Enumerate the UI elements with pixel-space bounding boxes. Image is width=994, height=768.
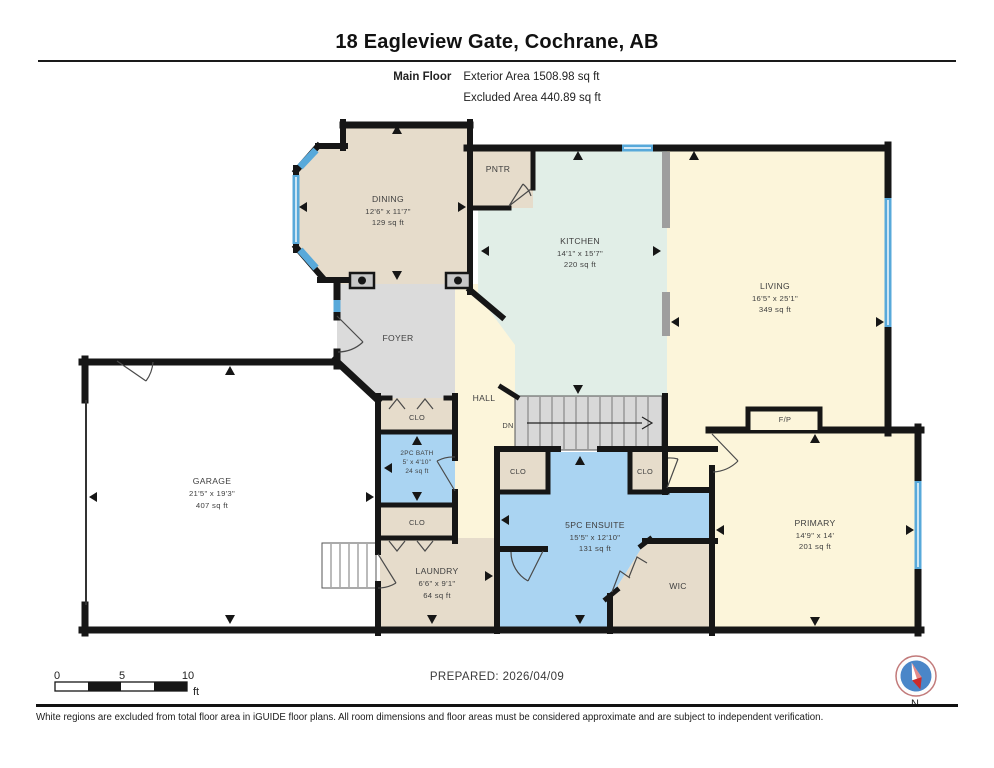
laundry-dims: 6'6" x 9'1" — [419, 579, 456, 588]
kitchen-label: KITCHEN — [560, 236, 600, 246]
half-wall-kitchen-lower — [662, 292, 670, 336]
dining-dims: 12'6" x 11'7" — [365, 207, 411, 216]
bath-area: 24 sq ft — [405, 468, 428, 475]
corridor-floor — [667, 430, 712, 490]
garage-staircase — [322, 543, 376, 588]
primary-area: 201 sq ft — [799, 542, 832, 551]
room-hall-lower-floor — [455, 452, 497, 540]
living-label: LIVING — [760, 281, 790, 291]
floor-plan-canvas: DINING 12'6" x 11'7" 129 sq ft PNTR KITC… — [0, 0, 994, 768]
garage-area: 407 sq ft — [196, 501, 229, 510]
dining-label: DINING — [372, 194, 404, 204]
prepared-date: PREPARED: 2026/04/09 — [0, 671, 994, 683]
main-staircase — [515, 396, 662, 450]
garage-label: GARAGE — [193, 476, 232, 486]
foyer-closet-label: CLO — [409, 413, 425, 422]
pantry-label: PNTR — [486, 164, 511, 174]
scale-bar-seg1 — [88, 682, 121, 691]
ensuite-closet-right-label: CLO — [637, 467, 653, 476]
primary-label: PRIMARY — [794, 518, 835, 528]
fireplace-label: F/P — [779, 415, 791, 424]
stairs-down-label: DN — [502, 421, 513, 430]
ensuite-dims: 15'5" x 12'10" — [570, 533, 621, 542]
hall-closet-label: CLO — [409, 518, 425, 527]
floorplan-page: 18 Eagleview Gate, Cochrane, AB Main Flo… — [0, 0, 994, 768]
bath-label: 2PC BATH — [400, 450, 433, 457]
bath-dims: 5' x 4'10" — [403, 459, 432, 466]
column-post-left-dot — [358, 277, 366, 285]
scale-bar-seg2 — [154, 682, 187, 691]
garage-dims: 21'5" x 19'3" — [189, 489, 235, 498]
half-wall-kitchen-upper — [662, 152, 670, 228]
scale-unit-label: ft — [193, 686, 199, 698]
living-area: 349 sq ft — [759, 305, 792, 314]
room-pantry-floor — [470, 145, 533, 208]
kitchen-area: 220 sq ft — [564, 260, 597, 269]
ensuite-area: 131 sq ft — [579, 544, 612, 553]
dining-area: 129 sq ft — [372, 218, 405, 227]
disclaimer-text: White regions are excluded from total fl… — [36, 712, 974, 723]
north-compass-icon: N — [896, 656, 936, 710]
room-primary-floor — [712, 430, 918, 630]
primary-dims: 14'9" x 14' — [796, 531, 835, 540]
kitchen-dims: 14'1" x 15'7" — [557, 249, 603, 258]
footer-divider — [36, 704, 958, 707]
laundry-area: 64 sq ft — [423, 591, 451, 600]
ensuite-label: 5PC ENSUITE — [565, 520, 625, 530]
laundry-label: LAUNDRY — [415, 566, 458, 576]
room-fills — [85, 122, 918, 630]
wic-label: WIC — [669, 581, 687, 591]
ensuite-closet-left-label: CLO — [510, 467, 526, 476]
living-dims: 16'5" x 25'1" — [752, 294, 798, 303]
foyer-label: FOYER — [382, 333, 413, 343]
hall-label: HALL — [473, 393, 496, 403]
column-post-right-dot — [454, 277, 462, 285]
